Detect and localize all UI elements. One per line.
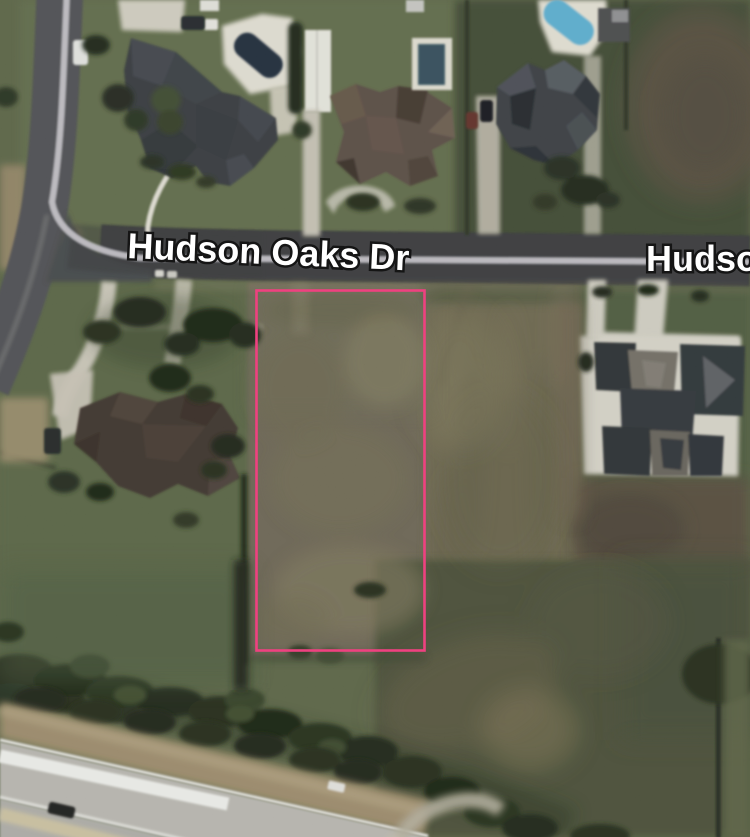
svg-text:Hudson Oaks Dr: Hudson Oaks Dr [646, 238, 750, 279]
